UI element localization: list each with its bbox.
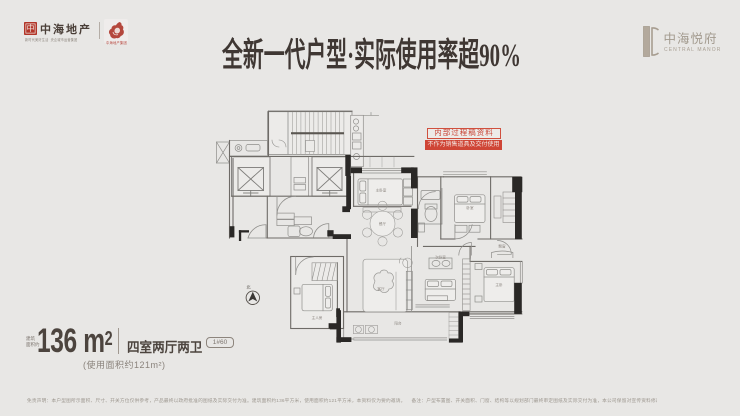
svg-text:客厅: 客厅 [377, 286, 385, 291]
svg-text:次卧室: 次卧室 [435, 255, 446, 260]
svg-text:主卧室: 主卧室 [376, 188, 387, 193]
svg-text:餐厅: 餐厅 [379, 221, 387, 226]
svg-text:主人房: 主人房 [312, 315, 323, 320]
svg-text:卧室: 卧室 [466, 205, 474, 210]
svg-text:飘窗: 飘窗 [498, 244, 506, 249]
svg-text:阳台: 阳台 [394, 321, 402, 326]
svg-text:主卧: 主卧 [495, 282, 503, 287]
